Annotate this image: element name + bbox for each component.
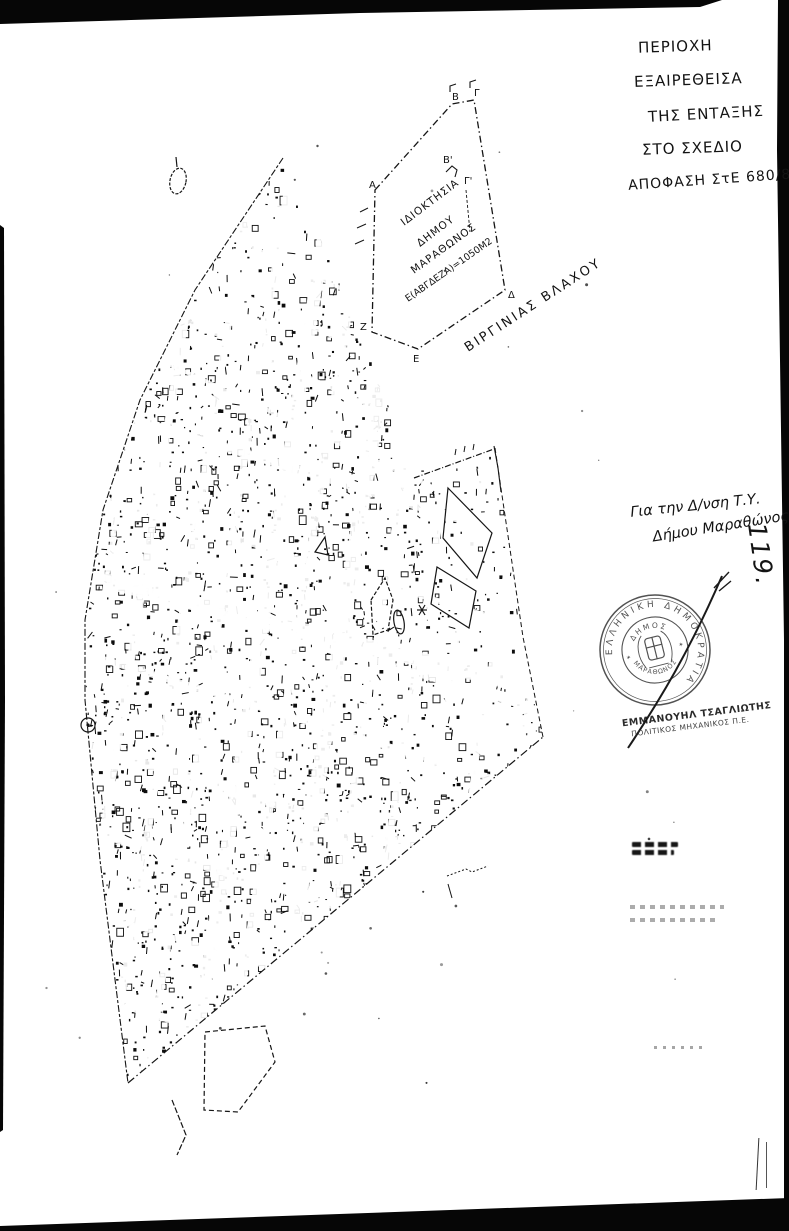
exclusion-line-3: ΤΗΣ ΕΝΤΑΞΗΣ [648, 100, 789, 126]
illegible-stamp-text [632, 842, 678, 858]
left-edge-ticks [355, 208, 368, 244]
page-fold-line [766, 1142, 767, 1188]
street-corridors [0, 106, 626, 1231]
corner-label-gamma-prime: Γ' [464, 176, 472, 187]
illegible-faint-text [630, 905, 724, 931]
illegible-text-row [630, 905, 724, 909]
corner-label-beta: Β [452, 92, 459, 103]
stamp-inner-top-text: ΔΗΜΟΣ [625, 617, 671, 644]
stamp-star-left: ✶ [625, 654, 632, 662]
corner-label-gamma: Γ [474, 88, 480, 99]
illegible-text-row [630, 918, 716, 922]
street-label: ΒΙΡΓΙΝΙΑΣ ΒΛΑΧΟΥ [462, 255, 605, 355]
parcel-diagram: Α Β Γ Β' Γ' Δ Ε Ζ ΙΔΙΟΚΤΗΣΙΑ ΔΗΜΟΥ ΜΑΡΑΘ… [355, 80, 605, 365]
corner-label-alpha: Α [369, 180, 376, 191]
illegible-faint-dots [654, 1046, 704, 1049]
scanned-map-page: Α Β Γ Β' Γ' Δ Ε Ζ ΙΔΙΟΚΤΗΣΙΑ ΔΗΜΟΥ ΜΑΡΑΘ… [0, 0, 789, 1231]
exclusion-line-1: ΠΕΡΙΟΧΗ [638, 33, 789, 57]
exclusion-note: ΠΕΡΙΟΧΗ ΕΞΑΙΡΕΘΕΙΣΑ ΤΗΣ ΕΝΤΑΞΗΣ ΣΤΟ ΣΧΕΔ… [628, 36, 789, 188]
illegible-text-row [632, 842, 678, 847]
stamp-star-right: ✶ [678, 641, 685, 649]
corner-label-delta: Δ [508, 290, 515, 301]
corner-label-zeta: Ζ [360, 322, 367, 333]
svg-text:ΔΗΜΟΣ: ΔΗΜΟΣ [625, 617, 671, 644]
municipal-stamp: ΕΛΛΗΝΙΚΗ ΔΗΜΟΚΡΑΤΙΑ ΔΗΜΟΣ ΜΑΡΑΘΩΝΟΣ ✶ ✶ [588, 583, 721, 716]
corner-label-beta-prime: Β' [443, 155, 453, 166]
illegible-text-row [632, 850, 674, 855]
corner-label-epsilon: Ε [413, 354, 419, 365]
exclusion-line-2: ΕΞΑΙΡΕΘΕΙΣΑ [634, 67, 789, 91]
exclusion-line-4: ΣΤΟ ΣΧΕΔΙΟ [642, 135, 789, 158]
